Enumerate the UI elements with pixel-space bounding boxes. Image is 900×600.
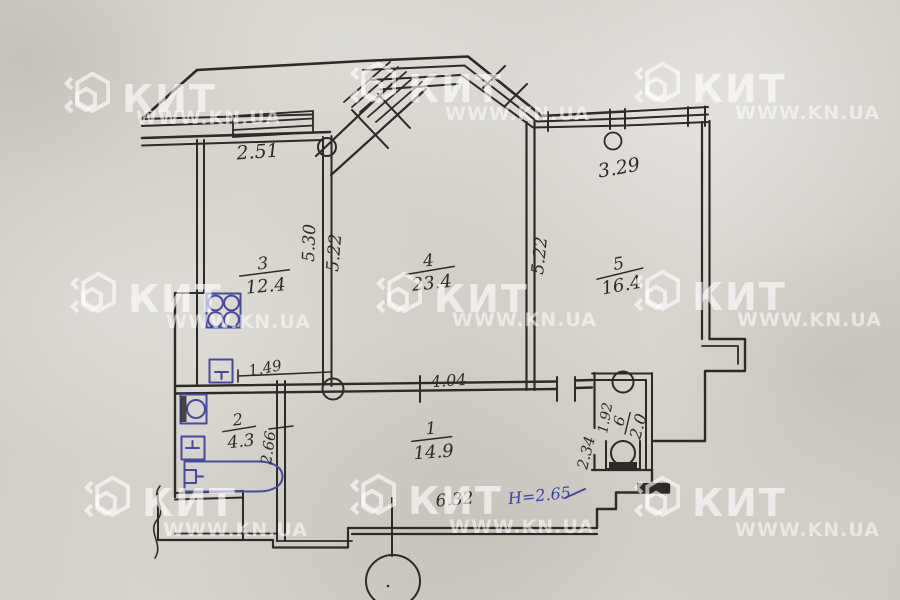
watermark-site: WWW.KN.UA [136,107,281,129]
dim-room3-depth: 5.30 [299,223,320,262]
dim-room4-depth: 5.22 [323,233,346,272]
watermark-site: WWW.KN.UA [735,102,880,124]
watermark-site: WWW.KN.UA [735,519,880,541]
room-1-label: 1 14.9 [410,418,454,465]
watermark-site: WWW.KN.UA [449,516,594,538]
dim-balcony-left: 2.51 [235,140,280,165]
dim-room4-width: 4.04 [429,370,467,392]
room-5-area: 16.4 [600,272,643,300]
vent-pipe-circle [613,372,634,393]
room-1-number: 1 [425,419,437,440]
kit-logo-icon [637,64,679,102]
room-2-number: 2 [231,410,244,430]
dim-wc-depth: 1.92 [595,401,616,435]
pipe-circles [318,133,622,400]
wc-toilet [606,441,640,470]
room-5-number: 5 [612,253,626,275]
room-1-area: 14.9 [413,441,454,465]
kit-logo-icon [637,272,679,310]
watermark-site: WWW.KN.UA [163,519,308,541]
kit-logo-icon [353,476,395,514]
room-3-number: 3 [257,254,270,275]
room-2-label: 2 4.3 [221,408,258,453]
kit-logo-icon [67,74,109,112]
room-5-label: 5 16.4 [593,250,647,300]
scanned-floor-plan-page: 3 12.4 4 23.4 5 16.4 2 4.3 1 14.9 6 2.0 … [0,0,900,600]
kit-logo-icon [87,478,129,516]
kitchen-sink [210,360,233,383]
dim-room5-depth: 5.22 [528,236,552,276]
dim-ceiling-height: Н=2.65 [506,483,572,509]
toilet [182,437,205,460]
watermark-site: WWW.KN.UA [166,311,311,333]
watermark-site: WWW.KN.UA [737,309,882,331]
room-3-area: 12.4 [245,274,287,298]
dim-kitchen-opening: 1.49 [247,356,283,380]
dim-balcony-right: 3.29 [596,154,641,183]
room-2-area: 4.3 [226,430,256,453]
washbasin [181,395,207,424]
room-3-label: 3 12.4 [238,252,292,299]
stamp-circle [366,555,420,600]
hall-top-wall [175,370,592,402]
kit-logo-icon [73,274,115,312]
watermark-site: WWW.KN.UA [445,103,590,125]
room-4-number: 4 [421,251,435,272]
watermark-site: WWW.KN.UA [452,309,597,331]
floor-plan-drawing: 3 12.4 4 23.4 5 16.4 2 4.3 1 14.9 6 2.0 … [0,0,900,600]
